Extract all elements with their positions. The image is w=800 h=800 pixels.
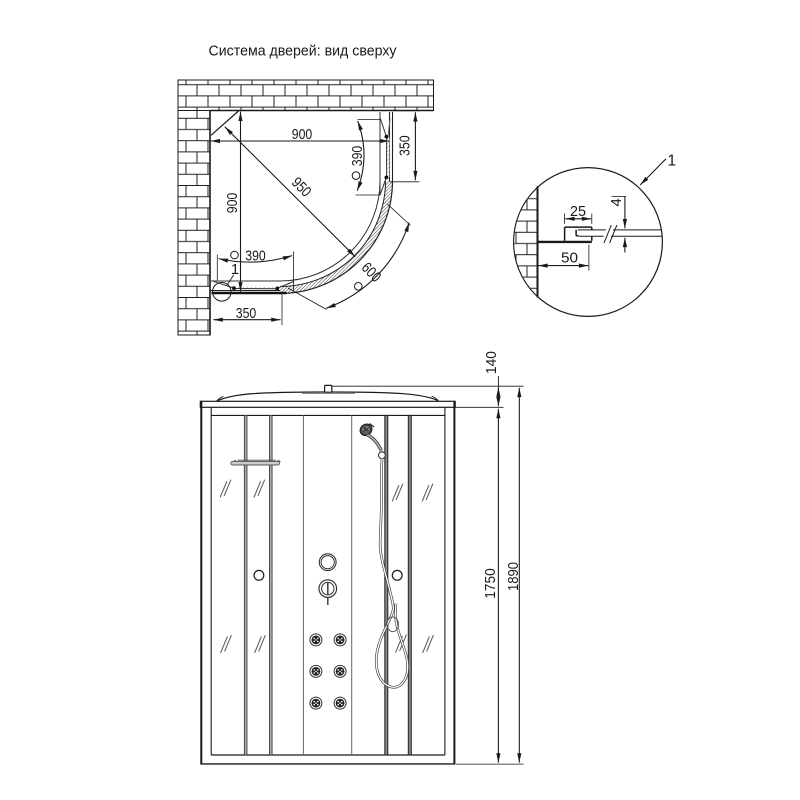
svg-text:350: 350	[236, 305, 257, 322]
svg-text:900: 900	[224, 193, 241, 214]
svg-text:1750: 1750	[482, 568, 499, 599]
svg-text:390: 390	[349, 146, 366, 167]
svg-text:Система дверей: вид сверху: Система дверей: вид сверху	[209, 44, 398, 60]
svg-text:600: 600	[358, 259, 385, 286]
svg-text:4: 4	[608, 198, 625, 206]
svg-text:140: 140	[483, 351, 500, 374]
svg-text:1: 1	[668, 153, 677, 170]
svg-text:50: 50	[561, 250, 578, 267]
svg-text:25: 25	[570, 203, 586, 220]
svg-text:390: 390	[245, 247, 266, 264]
svg-text:1: 1	[231, 261, 239, 278]
svg-text:900: 900	[292, 126, 313, 143]
svg-text:1890: 1890	[505, 562, 522, 591]
svg-text:350: 350	[397, 135, 414, 156]
svg-text:950: 950	[288, 174, 315, 201]
